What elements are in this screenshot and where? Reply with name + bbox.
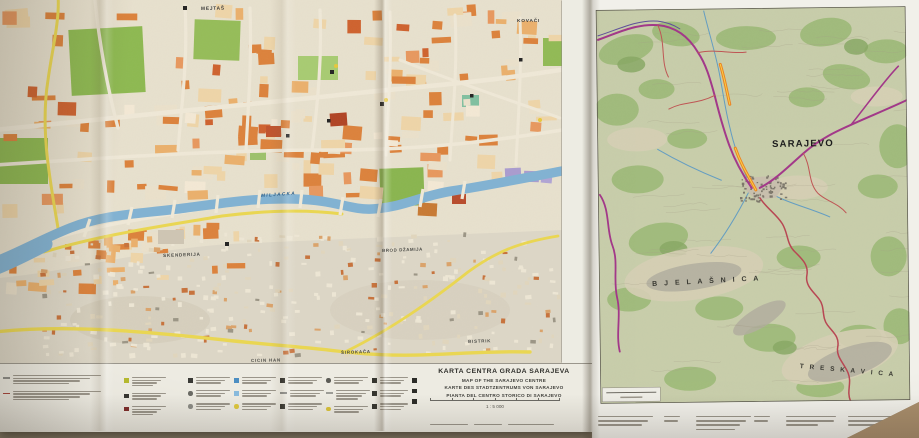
legend-item-text [196,377,230,385]
legend-item-text [336,390,370,401]
scale-bar [430,400,560,401]
city-map-sheet: KARTA CENTRA GRADA SARAJEVA MAP OF THE S… [0,0,592,431]
legend-item [412,398,420,404]
legend-column [3,375,101,407]
legend-circle-symbol [234,404,239,409]
legend-column [280,377,324,416]
legend-item-text [290,390,324,398]
topo-map-art [596,6,911,404]
legend-circle-symbol [188,404,193,409]
legend-item-text [380,403,408,411]
legend-item [372,377,408,385]
legend-item-text [242,390,276,398]
legend-item [3,391,101,402]
photo-of-maps: KARTA CENTRA GRADA SARAJEVA MAP OF THE S… [0,0,919,438]
legend-circle-symbol [188,391,193,396]
legend-square-symbol [234,391,239,396]
legend-column [372,377,408,416]
legend-item [372,403,408,411]
legend-square-symbol [412,378,417,383]
legend-item [124,377,166,388]
legend-item-text [132,406,166,417]
legend-item [124,406,166,417]
legend-square-symbol [234,378,239,383]
legend-item [412,377,420,383]
legend-column [412,377,420,409]
legend-item-text [334,406,368,414]
legend-item-text [132,393,166,401]
legend-item [280,390,324,398]
legend-item-text [242,377,276,385]
map-title-de: KARTE DES STADTZENTRUMS VON SARAJEVO [420,384,588,391]
legend-square-symbol [372,404,377,409]
scale-text: 1 : 5 000 [430,404,560,409]
city-sheet-right-margin [562,0,592,363]
legend-item [280,377,324,385]
map-title-it: PIANTA DEL CENTRO STORICO DI SARAJEVO [420,392,588,399]
legend-item [188,403,230,411]
legend-item [326,390,370,401]
legend-item [188,390,230,398]
legend-item-text [196,403,230,411]
legend-item [372,390,408,398]
legend-item [412,388,420,394]
map-title-block: KARTA CENTRA GRADA SARAJEVA MAP OF THE S… [420,367,588,399]
legend-square-symbol [124,407,129,412]
legend-square-symbol [124,394,129,399]
legend-circle-symbol [326,407,331,412]
legend-square-symbol [412,399,417,404]
legend-item [3,375,101,386]
legend-circle-symbol [326,378,331,383]
legend-item [188,377,230,385]
legend-column [188,377,230,416]
legend-dash-symbol [326,392,333,394]
legend-square-symbol [372,391,377,396]
city-map-art [0,0,592,363]
legend-item-text [288,403,322,411]
legend-column [124,377,166,422]
legend-square-symbol [124,378,129,383]
legend-column [234,377,276,416]
legend [0,364,420,432]
legend-item-text [13,391,101,402]
legend-square-symbol [280,404,285,409]
legend-square-symbol [188,378,193,383]
legend-dash-symbol [3,393,10,395]
legend-item-text [13,375,101,386]
legend-item [326,377,370,385]
legend-item-text [196,390,230,398]
legend-item-text [242,403,276,411]
legend-item [280,403,324,411]
legend-item-text [132,377,166,388]
paper-grain [0,0,562,363]
city-map-legend-margin: KARTA CENTRA GRADA SARAJEVA MAP OF THE S… [0,363,592,432]
legend-item [234,403,276,411]
legend-item [326,406,370,414]
legend-item-text [334,377,368,385]
legend-dash-symbol [280,392,287,394]
legend-item-text [288,377,322,385]
legend-dash-symbol [3,377,10,379]
legend-column [326,377,370,419]
paper-grain [596,6,911,404]
legend-item-text [380,377,408,385]
legend-item [234,377,276,385]
legend-square-symbol [372,378,377,383]
topo-map-sheet [592,0,919,438]
legend-square-symbol [280,378,285,383]
legend-square-symbol [412,389,417,394]
legend-item-text [380,390,408,398]
legend-item [234,390,276,398]
legend-item [124,393,166,401]
map-title: KARTA CENTRA GRADA SARAJEVA [420,367,588,377]
map-title-en: MAP OF THE SARAJEVO CENTRE [420,377,588,384]
